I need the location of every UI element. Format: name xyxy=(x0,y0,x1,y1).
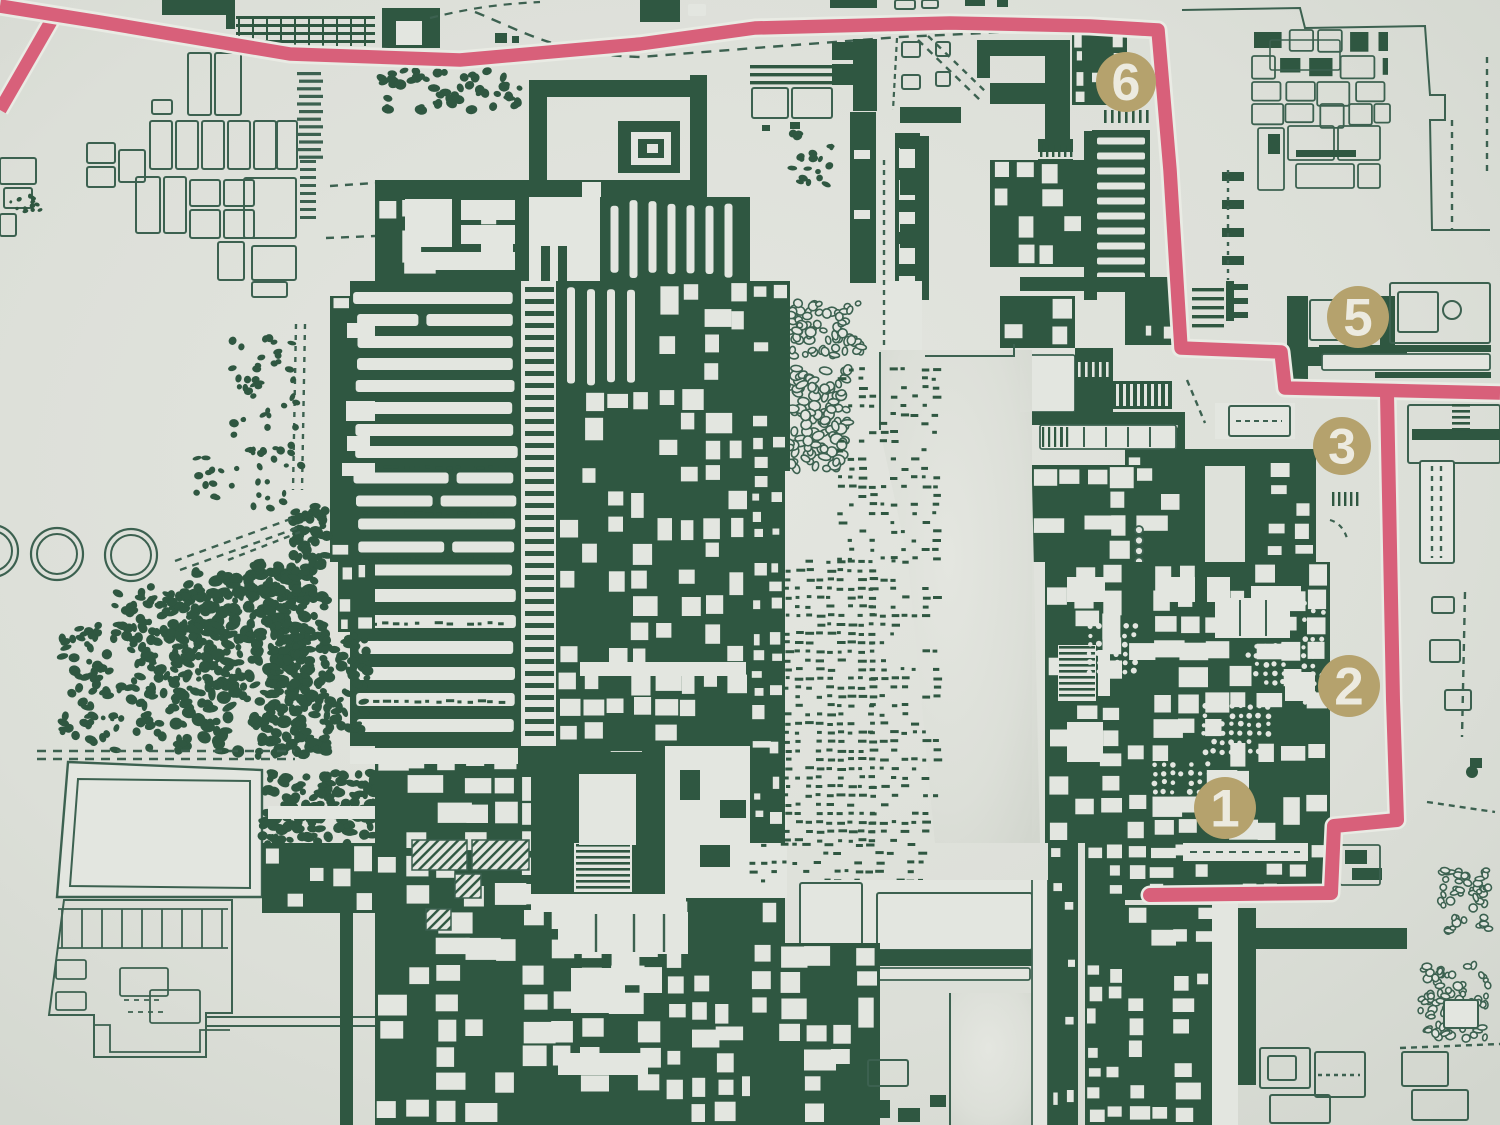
svg-text:3: 3 xyxy=(1328,418,1356,474)
svg-text:5: 5 xyxy=(1343,289,1372,348)
svg-text:1: 1 xyxy=(1210,780,1239,839)
svg-text:6: 6 xyxy=(1112,54,1141,112)
svg-text:2: 2 xyxy=(1334,658,1363,717)
